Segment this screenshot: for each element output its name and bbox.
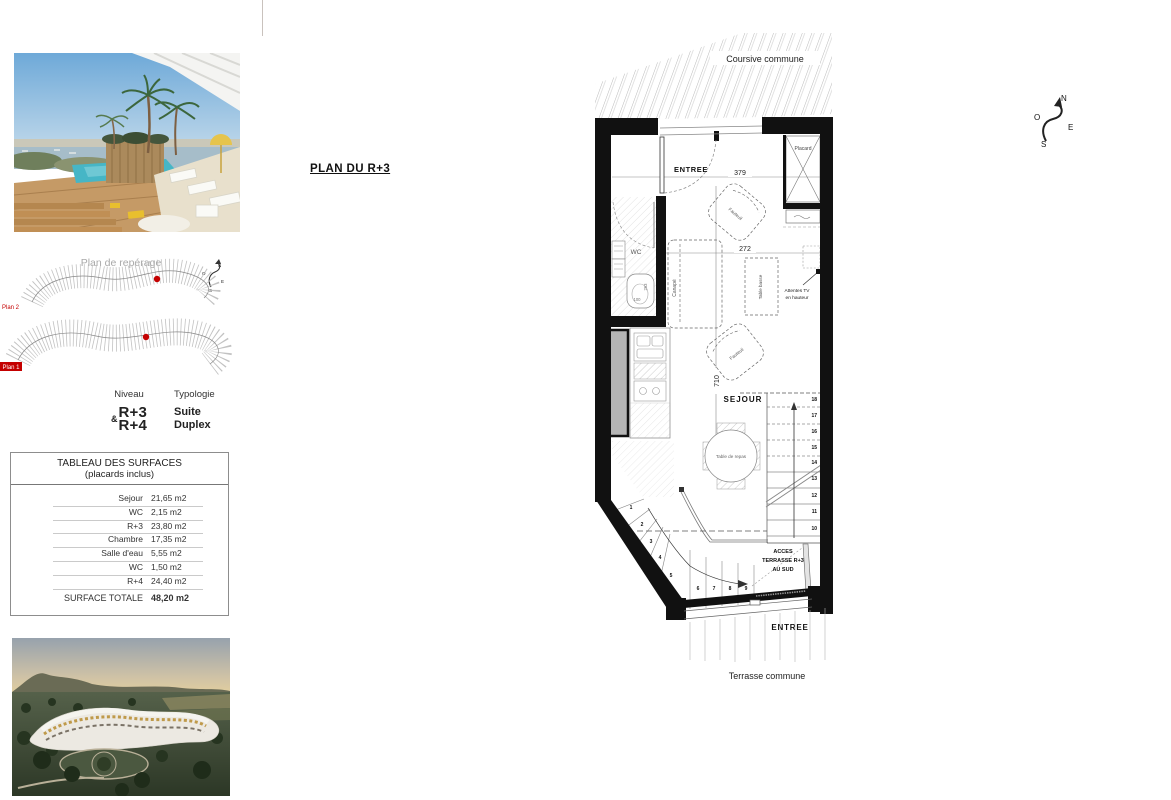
stair-arrow	[791, 402, 797, 410]
wc-cabinet	[612, 259, 625, 277]
stair-number: 15	[811, 445, 817, 451]
sejour-label: SEJOUR	[724, 395, 763, 404]
stair-number: 7	[713, 586, 716, 592]
surface-table-subtitle: (placards inclus)	[11, 469, 228, 480]
location-key-plan: Plan de repérage N O E S Plan 2 Plan 1	[0, 250, 240, 385]
table-total-row: SURFACE TOTALE 48,20 m2	[29, 593, 207, 607]
stair-number: 4	[659, 555, 662, 561]
table-row: Sejour 21,65 m2	[53, 493, 203, 507]
acces-line1: ACCES	[773, 549, 793, 555]
acces-line2: TERRASSE R+3	[762, 558, 804, 564]
table-row: Chambre 17,35 m2	[53, 534, 203, 548]
tv-outlet: Attentes TV en hauteur	[785, 246, 821, 301]
dim-379: 379	[734, 170, 746, 177]
toilet	[627, 274, 654, 308]
typologie-column: Typologie Suite Duplex	[174, 389, 215, 432]
tv-label-2: en hauteur	[786, 295, 809, 301]
floor-plan: Coursive commune 379 272 710 WC 100 263	[580, 25, 850, 690]
surface-table-title: TABLEAU DES SURFACES	[11, 458, 228, 469]
surface-rows: Sejour 21,65 m2 WC 2,15 m2 R+3 23,80 m2 …	[11, 493, 228, 606]
niveau-column: Niveau & R+3 R+4	[100, 389, 158, 432]
stair-number: 16	[811, 429, 817, 435]
surface-table-header: TABLEAU DES SURFACES (placards inclus)	[11, 453, 228, 485]
slider-handle	[750, 600, 760, 605]
terrace-door	[803, 544, 811, 592]
stair-number: 12	[811, 493, 817, 499]
compass-s: S	[1041, 140, 1046, 149]
surface-table: TABLEAU DES SURFACES (placards inclus) S…	[10, 452, 229, 616]
terrasse-label: Terrasse commune	[729, 671, 806, 681]
stair-number: 14	[811, 460, 817, 466]
compass-o: O	[1034, 113, 1040, 122]
compass-n: N	[1061, 94, 1067, 103]
dim-263: 263	[643, 283, 648, 291]
stair-number: 18	[811, 397, 817, 403]
stair-number: 8	[729, 586, 732, 592]
armchair-top-label: Fauteuil	[728, 207, 744, 221]
terrace-photo	[14, 53, 240, 232]
terrace-paving	[690, 608, 825, 662]
page-title: PLAN DU R+3	[310, 163, 390, 175]
coffee-table: Table basse	[745, 258, 778, 315]
compass-e: E	[1068, 123, 1073, 132]
svg-text:E: E	[221, 279, 224, 284]
dim-100: 100	[634, 297, 642, 302]
coursive-area: Coursive commune	[595, 33, 832, 122]
aerial-photo	[12, 638, 230, 796]
typology-suite: Suite	[174, 406, 215, 419]
table-row: R+3 23,80 m2	[53, 521, 203, 535]
dining-table: Table de repas	[703, 423, 760, 489]
kitchen	[603, 328, 670, 438]
entree-bottom-label: ENTREE	[771, 623, 808, 632]
niveau-header: Niveau	[114, 389, 144, 400]
level-typology-block: Niveau & R+3 R+4 Typologie Suite Duplex	[100, 389, 235, 432]
stair-number: 11	[812, 509, 818, 515]
armchair-top: Fauteuil	[704, 180, 769, 245]
plan2-label: Plan 2	[2, 305, 20, 311]
building-band-lower	[18, 332, 218, 364]
door-leaf	[660, 137, 664, 193]
closet-label: Placard	[795, 146, 812, 152]
reperage-title: Plan de repérage	[81, 257, 162, 269]
stair-number: 1	[630, 505, 633, 511]
stair-number: 5	[670, 573, 673, 579]
dim-710: 710	[714, 375, 721, 387]
stair-number: 6	[697, 586, 700, 592]
typologie-header: Typologie	[174, 389, 215, 400]
unit-marker-lower	[143, 334, 149, 340]
coursive-label: Coursive commune	[726, 54, 804, 64]
table-row: Salle d'eau 5,55 m2	[53, 548, 203, 562]
wc-cabinet	[612, 241, 625, 259]
tv-label-1: Attentes TV	[785, 288, 811, 294]
stair-number: 17	[811, 413, 817, 419]
plan1-label: Plan 1	[2, 365, 20, 371]
stair-number: 2	[641, 522, 644, 528]
entree-top-label: ENTREE	[674, 165, 708, 174]
dining-table-label: Table de repas	[716, 454, 747, 459]
table-row: WC 1,50 m2	[53, 562, 203, 576]
entry-door	[660, 126, 762, 193]
level-r4: R+4	[118, 419, 147, 432]
stair-number: 9	[745, 586, 748, 592]
table-row: R+4 24,40 m2	[53, 576, 203, 590]
ampersand: &	[111, 414, 118, 424]
under-stair-hatch	[612, 441, 674, 497]
coffee-table-label: Table basse	[758, 274, 763, 299]
dim-272: 272	[739, 246, 751, 253]
wc-label: WC	[631, 249, 642, 256]
typology-duplex: Duplex	[174, 419, 215, 432]
terrace-access: ACCES TERRASSE R+3 AU SUD	[752, 544, 811, 592]
compass-icon: N O E S	[1020, 80, 1090, 155]
sofa-label: Canapé	[672, 279, 678, 297]
armchair-bottom-label: Fauteuil	[729, 347, 745, 361]
closet: Placard	[783, 136, 820, 227]
building-band-upper	[32, 271, 208, 302]
svg-text:N: N	[218, 263, 221, 268]
unit-marker-upper	[154, 276, 160, 282]
shelf	[786, 210, 820, 223]
stair-number: 3	[650, 539, 653, 545]
table-row: WC 2,15 m2	[53, 507, 203, 521]
wc-room: WC 100 263	[611, 197, 656, 316]
stair-number: 10	[811, 526, 817, 532]
crop-mark	[262, 0, 263, 36]
stair-number: 13	[811, 476, 817, 482]
